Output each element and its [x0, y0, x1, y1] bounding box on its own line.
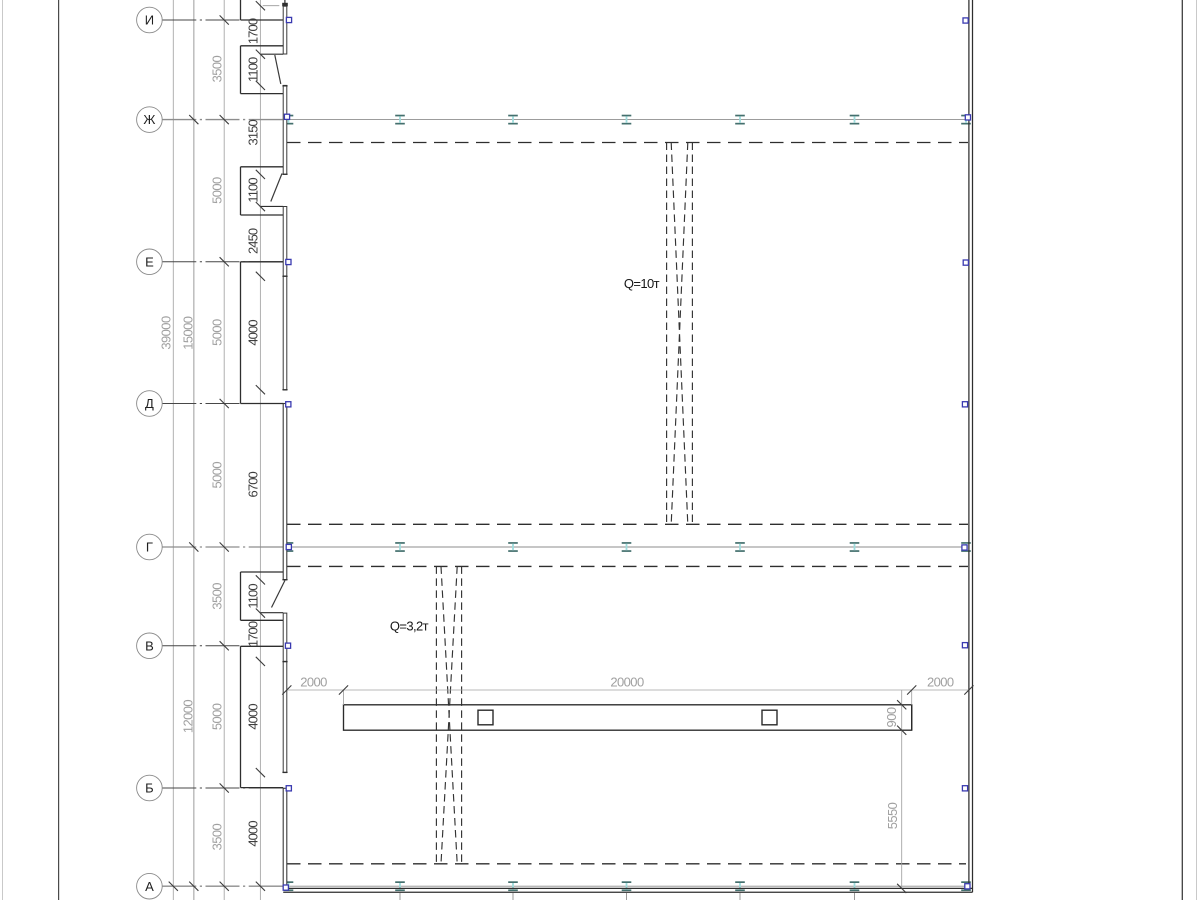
svg-text:Ж: Ж — [143, 112, 155, 127]
svg-text:2450: 2450 — [246, 228, 261, 254]
svg-text:2000: 2000 — [927, 675, 954, 690]
svg-text:1100: 1100 — [246, 178, 261, 203]
svg-text:Е: Е — [145, 254, 154, 269]
svg-text:5000: 5000 — [209, 319, 224, 346]
svg-text:В: В — [145, 638, 154, 653]
svg-text:5000: 5000 — [209, 703, 224, 730]
svg-text:А: А — [145, 879, 154, 894]
svg-text:Б: Б — [145, 781, 154, 796]
svg-text:1100: 1100 — [246, 57, 261, 82]
svg-text:4000: 4000 — [246, 704, 261, 730]
svg-text:4000: 4000 — [246, 320, 261, 346]
svg-text:1700: 1700 — [246, 18, 261, 44]
svg-text:5000: 5000 — [209, 462, 224, 489]
svg-text:1100: 1100 — [246, 584, 261, 609]
svg-text:15000: 15000 — [180, 316, 195, 350]
svg-text:900: 900 — [884, 707, 899, 727]
svg-text:5550: 5550 — [885, 802, 900, 829]
svg-text:2000: 2000 — [300, 675, 327, 690]
svg-text:1700: 1700 — [246, 621, 261, 647]
svg-text:6700: 6700 — [246, 471, 261, 497]
svg-text:3500: 3500 — [209, 55, 224, 82]
svg-text:3500: 3500 — [209, 823, 224, 850]
svg-text:3150: 3150 — [246, 119, 261, 145]
svg-text:39000: 39000 — [159, 316, 174, 350]
svg-text:5000: 5000 — [209, 177, 224, 204]
svg-text:И: И — [145, 13, 154, 28]
svg-text:3500: 3500 — [209, 583, 224, 610]
svg-text:4000: 4000 — [246, 821, 261, 847]
svg-text:Q=10т: Q=10т — [624, 276, 660, 291]
svg-text:Q=3,2т: Q=3,2т — [390, 618, 429, 633]
svg-text:Г: Г — [146, 540, 153, 555]
svg-text:12000: 12000 — [180, 700, 195, 734]
svg-text:Д: Д — [145, 396, 154, 411]
svg-text:20000: 20000 — [610, 674, 644, 689]
